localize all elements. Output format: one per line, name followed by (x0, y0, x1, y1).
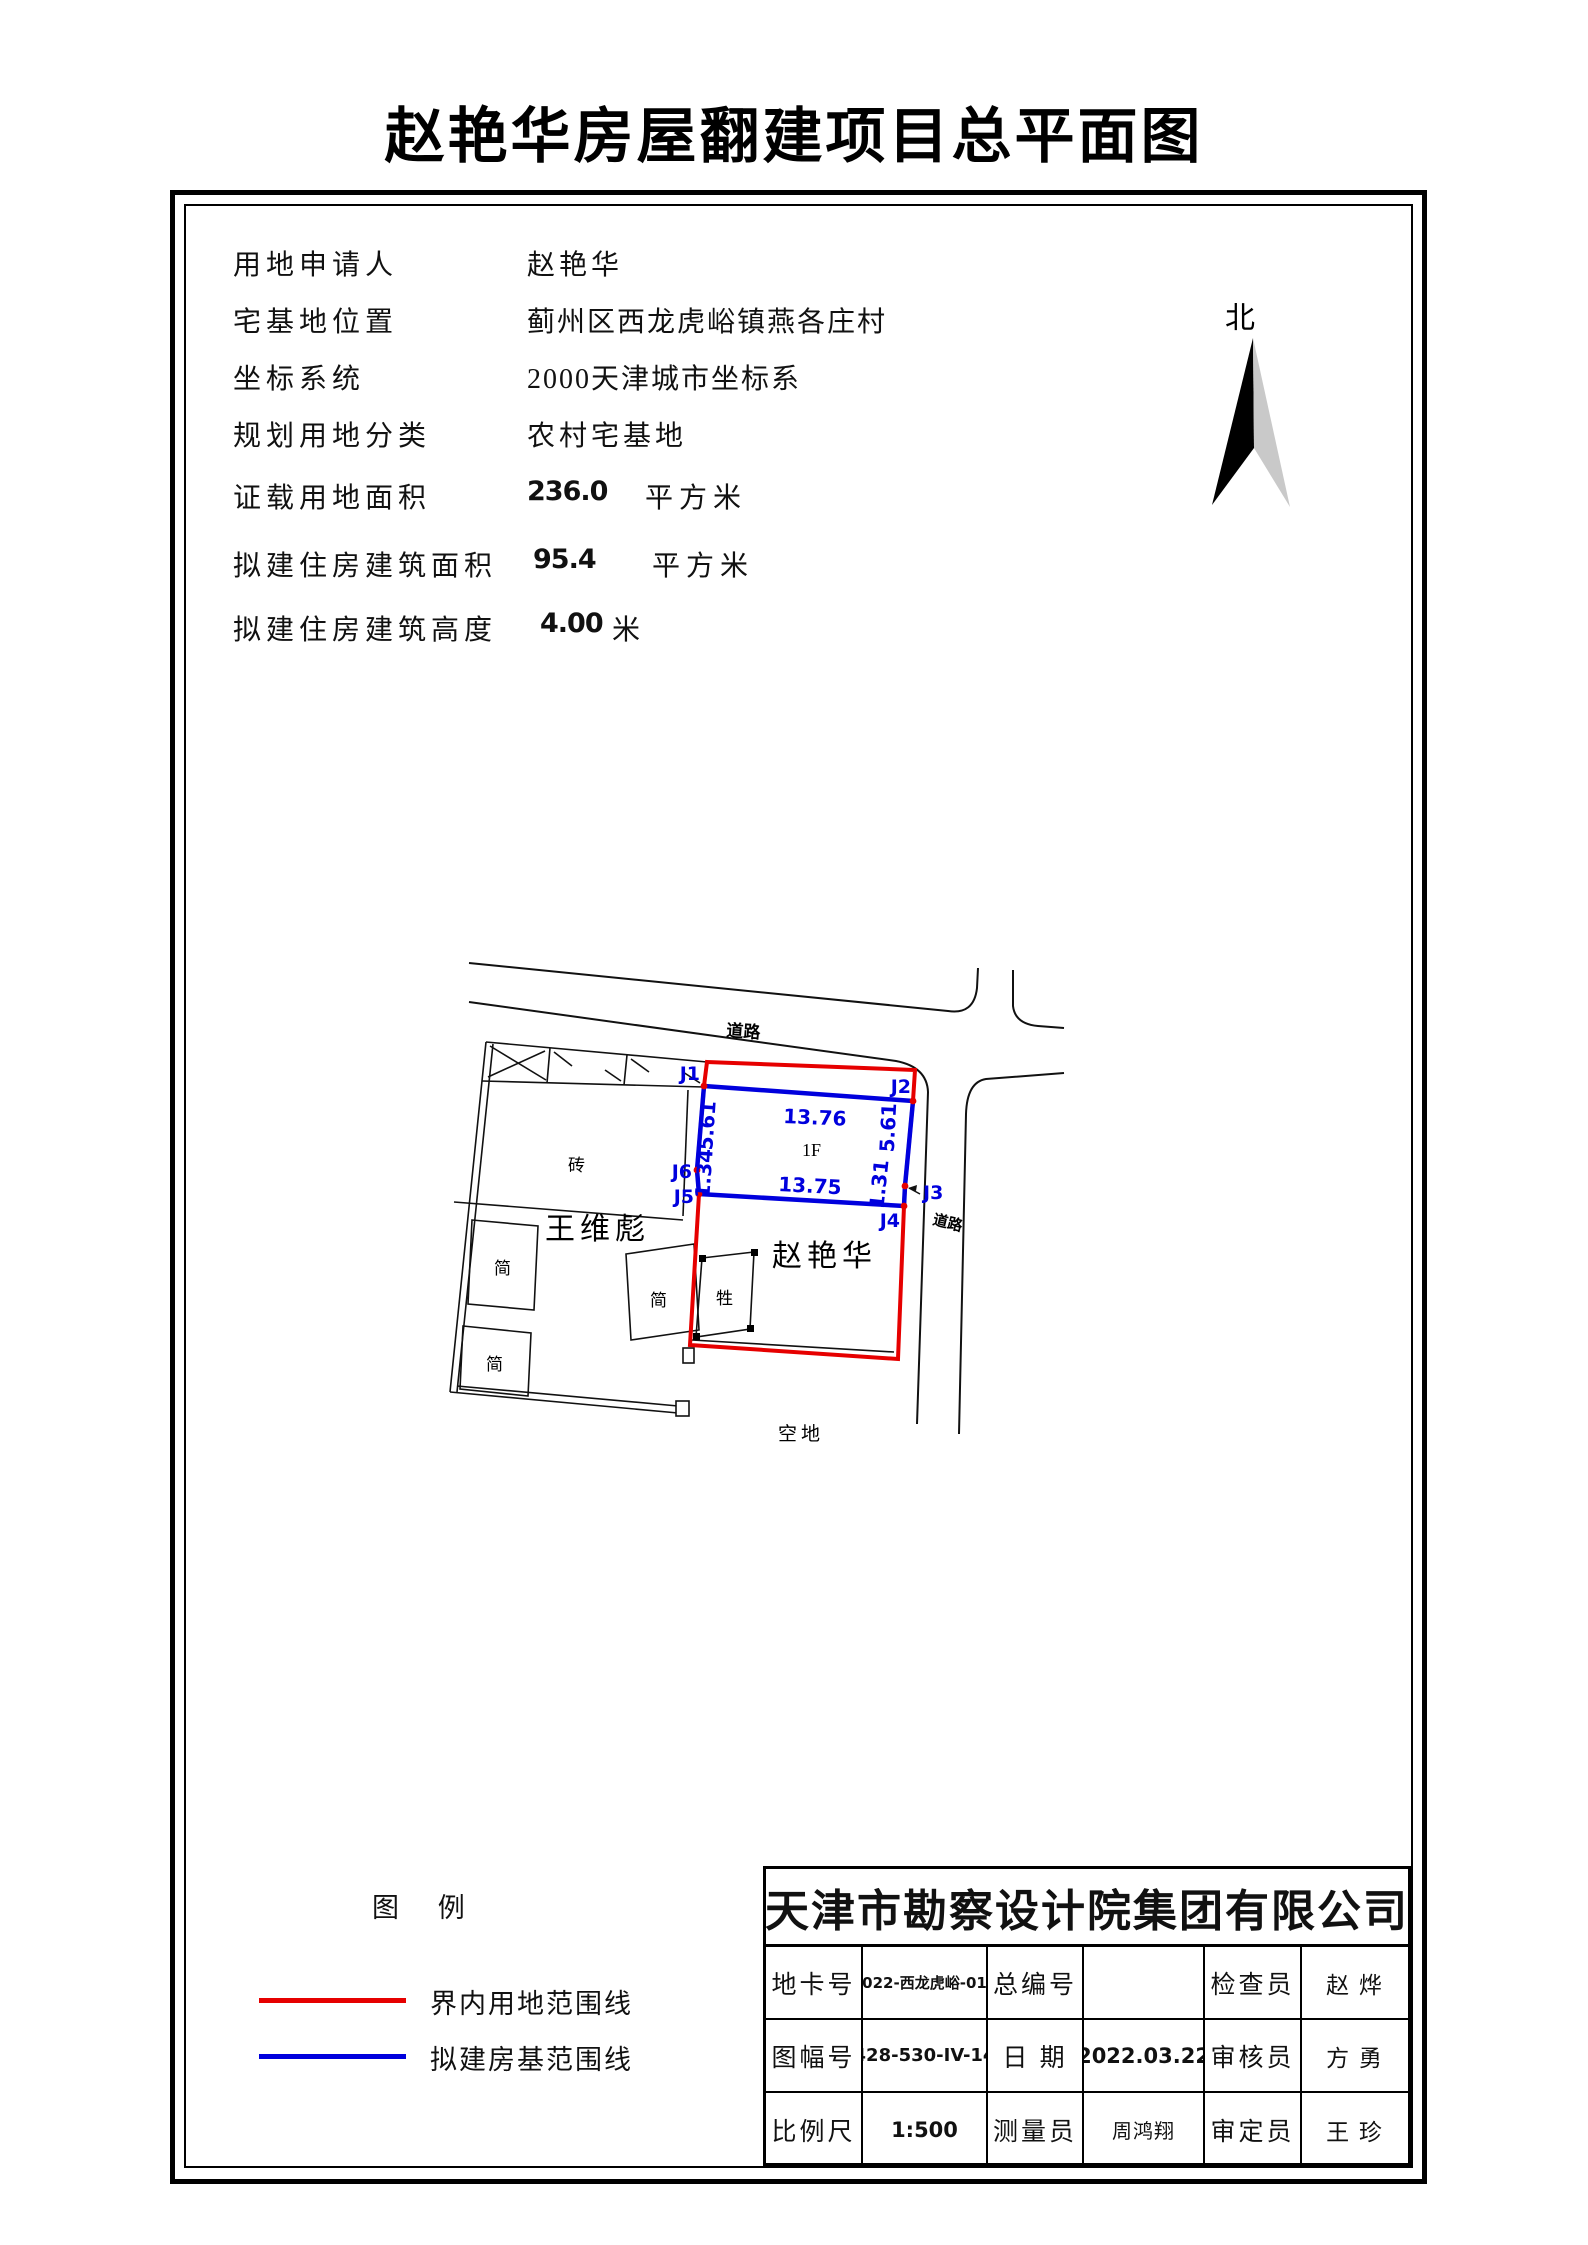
info-unit: 米 (612, 608, 646, 648)
info-row: 证载用地面积 236.0 平方米 (233, 476, 1133, 518)
j3-leader-arrow (908, 1185, 920, 1194)
simple-shed-label-2: 简 (486, 1355, 503, 1374)
info-row: 宅基地位置 蓟州区西龙虎峪镇燕各庄村 (233, 300, 1133, 342)
field-value-scale: 1:500 (863, 2093, 988, 2166)
field-value-reviewer: 方 勇 (1302, 2020, 1408, 2093)
point-label-j1: J1 (678, 1063, 700, 1085)
dim-right-upper: 5.61 (875, 1102, 902, 1153)
info-value: 蓟州区西龙虎峪镇燕各庄村 (527, 300, 887, 340)
info-value: 95.4 (533, 544, 596, 575)
title-block: 天津市勘察设计院集团有限公司 地卡号 2022-西龙虎峪-016 总编号 检查员… (763, 1866, 1411, 2166)
field-value-inspector: 赵 烨 (1302, 1947, 1408, 2020)
dim-right-lower: 1.31 (865, 1158, 894, 1210)
buildings-linework (450, 1042, 894, 1416)
empty-land-label: 空地 (778, 1423, 824, 1445)
dim-left-lower: 1.34 (690, 1148, 717, 1199)
north-arrow-light-half (1253, 338, 1290, 507)
info-value: 农村宅基地 (527, 414, 687, 454)
field-label-reviewer: 审核员 (1205, 2020, 1302, 2093)
field-value-surveyor: 周鸿翔 (1084, 2093, 1205, 2166)
info-label: 拟建住房建筑高度 (233, 608, 497, 648)
road-label-top: 道路 (726, 1020, 762, 1043)
info-unit: 平方米 (652, 544, 754, 584)
dim-bottom: 13.75 (778, 1172, 842, 1199)
field-value-date: 2022.03.22 (1084, 2020, 1205, 2093)
point-label-j6: J6 (670, 1161, 692, 1183)
north-arrow-dark-half (1212, 338, 1254, 505)
livestock-building-label: 牲 (716, 1289, 733, 1308)
point-label-j4: J4 (878, 1210, 900, 1232)
north-label: 北 (1225, 302, 1255, 335)
info-label: 坐标系统 (233, 357, 365, 397)
info-value: 2000天津城市坐标系 (527, 357, 801, 397)
field-value-total-no (1084, 1947, 1205, 2020)
road-label-right: 道路 (931, 1210, 965, 1235)
dim-left-upper: 5.61 (693, 1100, 720, 1151)
field-label-approver: 审定员 (1205, 2093, 1302, 2166)
info-row: 拟建住房建筑面积 95.4 平方米 (233, 544, 1133, 586)
field-label-sheet-no: 图幅号 (766, 2020, 863, 2093)
field-label-card-no: 地卡号 (766, 1947, 863, 2020)
info-unit: 平方米 (645, 476, 747, 516)
info-row: 用地申请人 赵艳华 (233, 243, 1133, 285)
info-value: 236.0 (527, 476, 607, 507)
page-title: 赵艳华房屋翻建项目总平面图 (0, 88, 1588, 175)
point-label-j3: J3 (921, 1182, 943, 1204)
legend-red-label: 界内用地范围线 (430, 1982, 633, 2021)
company-name: 天津市勘察设计院集团有限公司 (766, 1869, 1408, 1947)
simple-shed-label-3: 简 (650, 1291, 667, 1310)
info-label: 规划用地分类 (233, 414, 431, 454)
info-label: 拟建住房建筑面积 (233, 544, 497, 584)
floor-label: 1F (802, 1140, 821, 1160)
point-label-j2: J2 (889, 1076, 911, 1098)
owner-name-label: 赵艳华 (772, 1240, 877, 1273)
info-row: 规划用地分类 农村宅基地 (233, 414, 1133, 456)
legend-blue-line-swatch (259, 2054, 406, 2059)
info-value: 赵艳华 (527, 243, 623, 283)
field-label-total-no: 总编号 (988, 1947, 1084, 2020)
north-arrow: 北 (1180, 270, 1320, 530)
site-plan-document: 赵艳华房屋翻建项目总平面图 用地申请人 赵艳华 宅基地位置 蓟州区西龙虎峪镇燕各… (0, 0, 1588, 2245)
info-label: 证载用地面积 (233, 476, 431, 516)
site-plan-drawing: J1 J2 J3 J4 J5 J6 13.76 13.75 5.61 1.34 … (420, 940, 1080, 1460)
legend-blue-label: 拟建房基范围线 (430, 2038, 633, 2077)
info-row: 拟建住房建筑高度 4.00 米 (233, 608, 1133, 650)
field-label-inspector: 检查员 (1205, 1947, 1302, 2020)
dim-top: 13.76 (783, 1104, 847, 1131)
field-label-date: 日 期 (988, 2020, 1084, 2093)
field-value-approver: 王 珍 (1302, 2093, 1408, 2166)
info-label: 用地申请人 (233, 243, 398, 283)
info-row: 坐标系统 2000天津城市坐标系 (233, 357, 1133, 399)
neighbor-name-label: 王维彪 (545, 1213, 650, 1246)
info-value: 4.00 (540, 608, 603, 639)
field-value-card-no: 2022-西龙虎峪-016 (863, 1947, 988, 2020)
simple-shed-label-1: 简 (494, 1259, 511, 1278)
field-label-scale: 比例尺 (766, 2093, 863, 2166)
field-value-sheet-no: 428-530-IV-14 (863, 2020, 988, 2093)
legend-red-line-swatch (259, 1998, 406, 2003)
brick-building-label: 砖 (568, 1156, 585, 1175)
info-label: 宅基地位置 (233, 300, 398, 340)
legend-title: 图 例 (372, 1886, 481, 1925)
title-block-grid: 地卡号 2022-西龙虎峪-016 总编号 检查员 赵 烨 图幅号 428-53… (766, 1947, 1408, 2166)
field-label-surveyor: 测量员 (988, 2093, 1084, 2166)
